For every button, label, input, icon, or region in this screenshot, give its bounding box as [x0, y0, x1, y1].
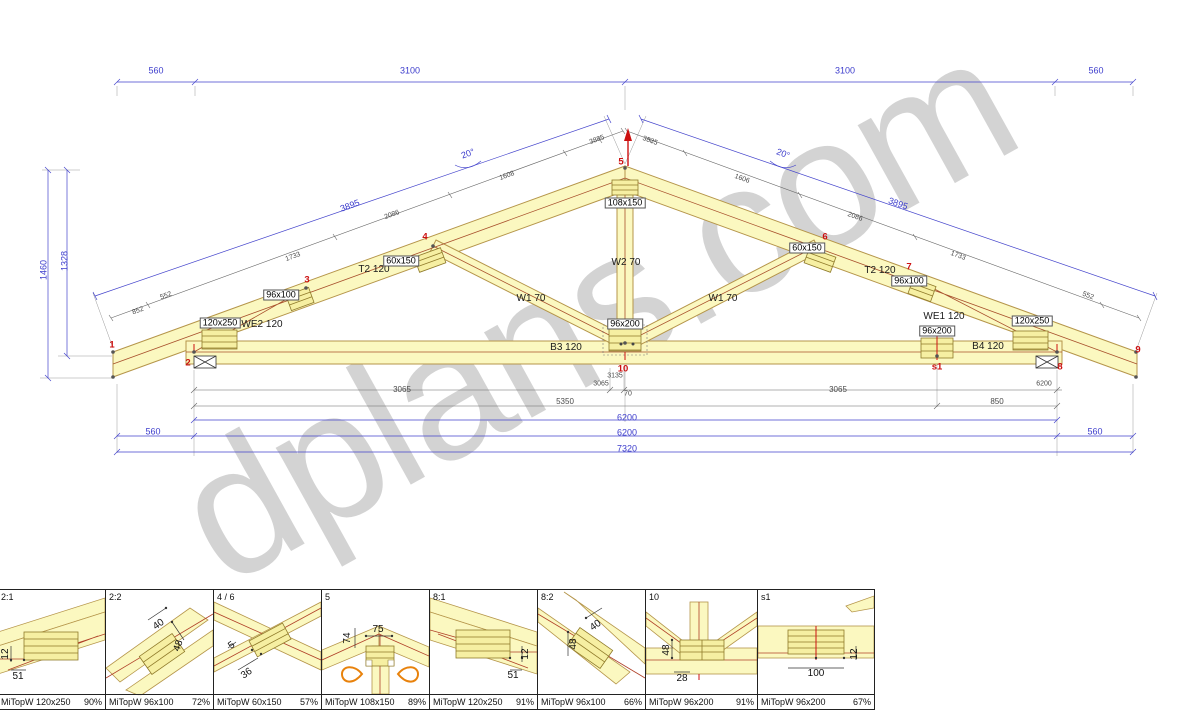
detail-dim-label: 28 — [676, 674, 687, 684]
extension-lines — [40, 86, 1157, 456]
panel-title: 10 — [649, 592, 659, 602]
web-diagonal-right — [626, 240, 820, 349]
plate-center — [603, 325, 647, 355]
detail-panel-4-6: 4 / 6 MiTopW 60x15057% 536 — [213, 589, 322, 710]
panel-plate-name: MiTopW 96x100 — [541, 697, 606, 707]
panel-utilization: 67% — [853, 697, 871, 707]
panel-title: 4 / 6 — [217, 592, 235, 602]
panel-title: s1 — [761, 592, 771, 602]
detail-panel-8-2: 8:2 MiTopW 96x10066% 4840 — [537, 589, 646, 710]
detail-panel-2-2: 2:2 MiTopW 96x10072% 4048 — [105, 589, 214, 710]
plate-apex — [612, 180, 638, 195]
joint-detail-panels: 2:1 MiTopW 120x25090% 1251 2:2 MiTopW 96… — [0, 589, 875, 710]
panel-title: 8:1 — [433, 592, 446, 602]
dimension-lines-blue — [45, 79, 1157, 455]
detail-panel-s1: s1 MiTopW 96x20067% 10012 — [757, 589, 875, 710]
detail-dim-label: 48 — [569, 638, 579, 649]
panel-utilization: 89% — [408, 697, 426, 707]
panel-plate-name: MiTopW 60x150 — [217, 697, 282, 707]
panel-plate-name: MiTopW 96x100 — [109, 697, 174, 707]
panel-title: 2:2 — [109, 592, 122, 602]
support-right — [1036, 356, 1058, 368]
panel-utilization: 91% — [736, 697, 754, 707]
panel-title: 8:2 — [541, 592, 554, 602]
panel-utilization: 91% — [516, 697, 534, 707]
detail-dim-label: 48 — [662, 644, 672, 655]
panel-utilization: 57% — [300, 697, 318, 707]
detail-dim-label: 75 — [372, 625, 383, 635]
detail-dim-label: 51 — [507, 671, 518, 681]
detail-dim-label: 12 — [850, 648, 860, 659]
support-left — [194, 356, 216, 368]
panel-plate-name: MiTopW 120x250 — [1, 697, 71, 707]
panel-plate-name: MiTopW 96x200 — [649, 697, 714, 707]
load-arrow — [624, 128, 632, 166]
detail-dim-label: 12 — [1, 648, 11, 659]
plate-heel-right — [1013, 331, 1048, 350]
detail-panel-10: 10 MiTopW 96x20091% 4828 — [645, 589, 758, 710]
panel-utilization: 72% — [192, 697, 210, 707]
detail-dim-label: 12 — [521, 648, 531, 659]
detail-panel-2-1: 2:1 MiTopW 120x25090% 1251 — [0, 589, 106, 710]
detail-dim-label: 51 — [12, 672, 23, 682]
panel-plate-name: MiTopW 120x250 — [433, 697, 503, 707]
detail-panel-5: 5 MiTopW 108x15089% 7475 — [321, 589, 430, 710]
panel-plate-name: MiTopW 108x150 — [325, 697, 395, 707]
detail-dim-label: 100 — [808, 669, 825, 679]
detail-panel-8-1: 8:1 MiTopW 120x25091% 1251 — [429, 589, 538, 710]
panel-plate-name: MiTopW 96x200 — [761, 697, 826, 707]
panel-utilization: 66% — [624, 697, 642, 707]
detail-dim-label: 74 — [343, 632, 353, 643]
panel-title: 2:1 — [1, 592, 14, 602]
truss-drawing — [0, 0, 1200, 588]
panel-utilization: 90% — [84, 697, 102, 707]
plate-heel-left — [202, 330, 237, 349]
panel-title: 5 — [325, 592, 330, 602]
